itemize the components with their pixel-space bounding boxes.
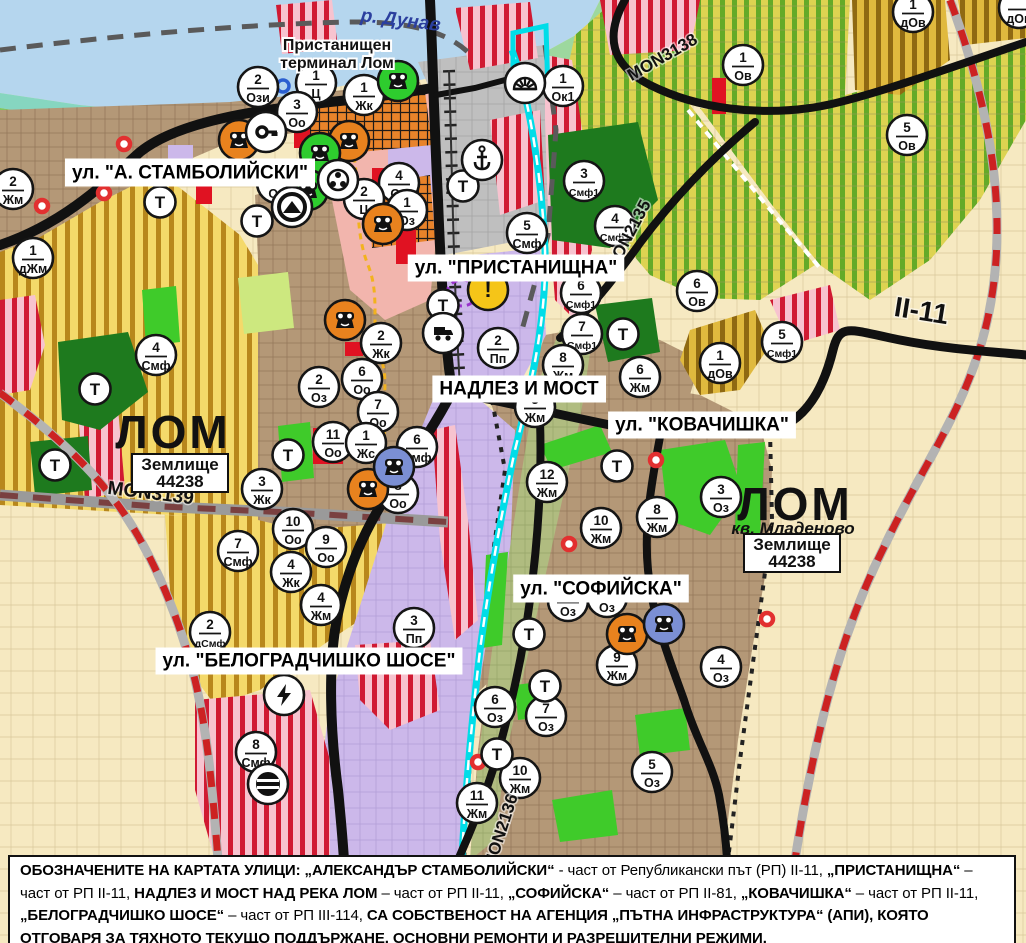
caption-segment: – част от РП II-81, xyxy=(609,885,741,902)
svg-text:Жм: Жм xyxy=(310,609,332,623)
svg-text:3: 3 xyxy=(258,474,266,489)
svg-text:терминал Лом: терминал Лом xyxy=(280,55,394,72)
svg-text:1: 1 xyxy=(716,348,724,363)
svg-text:6: 6 xyxy=(693,276,701,291)
svg-text:4: 4 xyxy=(317,590,325,605)
tunnel-icon xyxy=(272,187,312,227)
svg-text:Смф1: Смф1 xyxy=(569,187,599,199)
cadastre-box: Землище44238 xyxy=(132,454,228,492)
svg-text:Жк: Жк xyxy=(354,99,373,113)
zone-marker-Жм: 10Жм xyxy=(581,508,621,548)
svg-text:3: 3 xyxy=(717,482,725,497)
svg-text:Жм: Жм xyxy=(590,532,612,546)
svg-text:5: 5 xyxy=(778,327,786,342)
street-label: НАДЛЕЗ И МОСТ xyxy=(432,376,606,403)
zone-marker-Ов: 1Ов xyxy=(723,45,763,85)
street-label: ул. "СОФИЙСКА" xyxy=(513,575,689,603)
svg-text:6: 6 xyxy=(413,432,421,447)
street-label: ул. "КОВАЧИШКА" xyxy=(608,412,796,439)
svg-text:2: 2 xyxy=(254,72,262,87)
svg-text:1: 1 xyxy=(360,80,368,95)
svg-text:4: 4 xyxy=(611,211,619,226)
zone-marker-Смф1: 5Смф1 xyxy=(762,322,802,362)
port-terminal-label: Пристанищентерминал Лом xyxy=(280,37,394,72)
poi-red-dot xyxy=(761,613,773,625)
poi-red-dot xyxy=(98,187,110,199)
svg-text:5: 5 xyxy=(523,218,531,233)
svg-text:44238: 44238 xyxy=(768,552,815,571)
zone-marker-Пп: 3Пп xyxy=(394,608,434,648)
zone-marker-Жк: 4Жк xyxy=(271,552,311,592)
svg-text:Ов: Ов xyxy=(734,69,752,83)
lightning-icon xyxy=(264,675,304,715)
svg-text:2: 2 xyxy=(377,328,385,343)
svg-text:Жм: Жм xyxy=(629,381,651,395)
svg-text:дОв: дОв xyxy=(1006,12,1026,26)
svg-text:Жм: Жм xyxy=(509,782,531,796)
zone-marker-Жм: 11Жм xyxy=(457,783,497,823)
svg-text:6: 6 xyxy=(358,364,366,379)
caption-segment: - част от Републикански път (РП) II-11, xyxy=(555,862,827,879)
svg-text:1: 1 xyxy=(909,0,917,12)
t-marker: Т xyxy=(482,739,513,770)
svg-text:7: 7 xyxy=(542,701,550,716)
svg-text:Ози: Ози xyxy=(246,91,270,105)
svg-text:10: 10 xyxy=(512,763,527,778)
zone-marker-Оз: 6Оз xyxy=(475,687,515,727)
svg-text:6: 6 xyxy=(636,362,644,377)
zone-marker-Жм: 2Жм xyxy=(0,169,33,209)
zone-marker-Жм: 8Жм xyxy=(637,497,677,537)
svg-text:ул. "СОФИЙСКА": ул. "СОФИЙСКА" xyxy=(520,578,682,600)
svg-text:1: 1 xyxy=(559,71,567,86)
zone-marker-дОв: 1дОв xyxy=(893,0,933,32)
monument-orange-icon xyxy=(607,614,647,654)
svg-text:Оз: Оз xyxy=(644,776,660,790)
svg-text:2: 2 xyxy=(360,184,368,199)
zone-marker-Смф: 7Смф xyxy=(218,531,258,571)
svg-text:ул. "А. СТАМБОЛИЙСКИ": ул. "А. СТАМБОЛИЙСКИ" xyxy=(72,162,308,184)
zone-marker-Жм: 6Жм xyxy=(620,357,660,397)
svg-text:дОв: дОв xyxy=(707,367,733,381)
svg-text:8: 8 xyxy=(559,350,567,365)
zone-marker-Жм: 4Жм xyxy=(301,585,341,625)
svg-text:11: 11 xyxy=(470,788,485,803)
t-marker: Т xyxy=(608,319,639,350)
svg-text:10: 10 xyxy=(593,513,608,528)
svg-text:Оо: Оо xyxy=(284,533,302,547)
railcross-icon xyxy=(248,764,288,804)
svg-text:Оо: Оо xyxy=(389,497,407,511)
svg-text:Оо: Оо xyxy=(288,116,306,130)
caption-segment: НАДЛЕЗ И МОСТ НАД РЕКА ЛОМ xyxy=(134,885,377,902)
zone-marker-Оз: 2Оз xyxy=(299,367,339,407)
monument-blue-icon xyxy=(374,447,414,487)
map-screenshot: 2Ози1Ц3Оо1ЖкОо4Оо2Ц1Оз2Жм1дЖм4Смф1Ок13См… xyxy=(0,0,1026,943)
svg-text:Смф1: Смф1 xyxy=(767,348,797,360)
svg-text:Оо: Оо xyxy=(324,446,342,460)
zone-marker-дСмф: 2дСмф xyxy=(190,612,230,652)
street-label: ул. "А. СТАМБОЛИЙСКИ" xyxy=(65,159,315,187)
t-marker: Т xyxy=(530,671,561,702)
caption-segment: – част от РП III-114, xyxy=(224,907,367,924)
zone-marker-Смф1: 3Смф1 xyxy=(564,161,604,201)
svg-text:Т: Т xyxy=(90,380,101,399)
svg-text:Ок1: Ок1 xyxy=(552,90,575,104)
zone-marker-дОв: 1дОв xyxy=(700,343,740,383)
svg-text:Ов: Ов xyxy=(688,295,706,309)
svg-text:ул. "КОВАЧИШКА": ул. "КОВАЧИШКА" xyxy=(615,415,789,436)
svg-text:Жм: Жм xyxy=(606,669,628,683)
svg-text:Смф: Смф xyxy=(512,237,541,251)
svg-text:Оо: Оо xyxy=(317,551,335,565)
svg-text:Оз: Оз xyxy=(487,711,503,725)
svg-text:10: 10 xyxy=(285,514,300,529)
poi-red-dot xyxy=(36,200,48,212)
zone-marker-Жм: 12Жм xyxy=(527,462,567,502)
svg-text:Жк: Жк xyxy=(281,576,300,590)
caption-segment: – част от РП II-11, xyxy=(852,885,978,902)
svg-text:Оз: Оз xyxy=(599,601,615,615)
zoning-map: 2Ози1Ц3Оо1ЖкОо4Оо2Ц1Оз2Жм1дЖм4Смф1Ок13См… xyxy=(0,0,1026,943)
svg-text:2: 2 xyxy=(315,372,323,387)
zone-marker-Ози: 2Ози xyxy=(238,67,278,107)
svg-text:1: 1 xyxy=(739,50,747,65)
svg-text:Жк: Жк xyxy=(371,347,390,361)
svg-text:5: 5 xyxy=(903,120,911,135)
svg-text:Т: Т xyxy=(283,446,294,465)
svg-text:8: 8 xyxy=(252,737,260,752)
svg-text:НАДЛЕЗ И МОСТ: НАДЛЕЗ И МОСТ xyxy=(439,379,599,400)
svg-text:Т: Т xyxy=(252,212,263,231)
zone-marker-Оз: 4Оз xyxy=(701,647,741,687)
svg-text:Смф1: Смф1 xyxy=(566,299,596,311)
svg-text:2: 2 xyxy=(494,333,502,348)
svg-text:44238: 44238 xyxy=(156,472,203,491)
svg-text:5: 5 xyxy=(648,757,656,772)
svg-text:Т: Т xyxy=(618,325,629,344)
svg-text:ул. "БЕЛОГРАДЧИШКО ШОСЕ": ул. "БЕЛОГРАДЧИШКО ШОСЕ" xyxy=(163,651,456,672)
svg-text:Т: Т xyxy=(155,193,166,212)
svg-text:Оз: Оз xyxy=(713,501,729,515)
svg-text:3: 3 xyxy=(580,166,588,181)
svg-text:3: 3 xyxy=(293,97,301,112)
svg-text:Ов: Ов xyxy=(898,139,916,153)
zone-marker-Оо: 9Оо xyxy=(306,527,346,567)
svg-text:ул. "ПРИСТАНИЩНА": ул. "ПРИСТАНИЩНА" xyxy=(415,258,618,279)
palegreen-patch xyxy=(238,272,294,334)
svg-text:9: 9 xyxy=(322,532,330,547)
svg-text:8: 8 xyxy=(653,502,661,517)
svg-text:12: 12 xyxy=(539,467,554,482)
zone-marker-Оз: 5Оз xyxy=(632,752,672,792)
t-marker: Т xyxy=(514,619,545,650)
zone-marker-Жк: 2Жк xyxy=(361,323,401,363)
poi-red-dot xyxy=(650,454,662,466)
svg-text:дЖм: дЖм xyxy=(19,262,47,276)
svg-text:Т: Т xyxy=(524,625,535,644)
t-marker: Т xyxy=(145,187,176,218)
svg-text:Оз: Оз xyxy=(538,720,554,734)
svg-text:дОв: дОв xyxy=(900,16,926,30)
city-label: ЛОМ xyxy=(115,406,230,458)
svg-text:Жм: Жм xyxy=(524,411,546,425)
svg-text:Пп: Пп xyxy=(406,632,423,646)
poi-red-dot xyxy=(563,538,575,550)
key-icon xyxy=(246,112,286,152)
svg-text:Т: Т xyxy=(492,745,503,764)
svg-text:Пристанищен: Пристанищен xyxy=(283,37,391,54)
svg-text:7: 7 xyxy=(374,397,382,412)
poi-red-dot xyxy=(118,138,130,150)
caption-segment: – част от РП II-11, xyxy=(377,885,508,902)
caption-segment: „СОФИЙСКА“ xyxy=(508,885,609,902)
svg-text:Жк: Жк xyxy=(252,493,271,507)
svg-text:Жм: Жм xyxy=(466,807,488,821)
t-marker: Т xyxy=(40,450,71,481)
t-marker: Т xyxy=(242,206,273,237)
svg-text:Т: Т xyxy=(540,677,551,696)
svg-text:Пп: Пп xyxy=(490,352,507,366)
zone-marker-Ов: 6Ов xyxy=(677,271,717,311)
zone-marker-Оз: 3Оз xyxy=(701,477,741,517)
svg-text:2: 2 xyxy=(206,617,214,632)
street-label: ул. "БЕЛОГРАДЧИШКО ШОСЕ" xyxy=(156,648,463,675)
svg-text:3: 3 xyxy=(410,613,418,628)
svg-text:7: 7 xyxy=(578,319,586,334)
caption-segment: „ПРИСТАНИЩНА“ xyxy=(827,862,960,879)
zone-marker-Пп: 2Пп xyxy=(478,328,518,368)
svg-text:7: 7 xyxy=(234,536,242,551)
truck-icon xyxy=(423,313,463,353)
svg-text:6: 6 xyxy=(491,692,499,707)
svg-text:Оз: Оз xyxy=(713,671,729,685)
svg-text:11: 11 xyxy=(326,427,341,442)
svg-text:2: 2 xyxy=(9,174,17,189)
zone-marker-Ов: 5Ов xyxy=(887,115,927,155)
svg-text:4: 4 xyxy=(717,652,725,667)
svg-text:4: 4 xyxy=(395,168,403,183)
people-icon xyxy=(318,160,358,200)
svg-text:Жм: Жм xyxy=(2,193,24,207)
zone-marker-Смф: 5Смф xyxy=(507,213,547,253)
zone-marker-Ок1: 1Ок1 xyxy=(543,66,583,106)
svg-text:4: 4 xyxy=(152,340,160,355)
svg-text:1: 1 xyxy=(29,243,37,258)
svg-text:Т: Т xyxy=(458,177,469,196)
monument-orange-icon xyxy=(325,300,365,340)
caption-segment: „БЕЛОГРАДЧИШКО ШОСЕ“ xyxy=(20,907,224,924)
caption-segment: ОБОЗНАЧЕНИТЕ НА КАРТАТА УЛИЦИ: „АЛЕКСАНД… xyxy=(20,862,555,879)
svg-text:Жм: Жм xyxy=(646,521,668,535)
cadastre-box: Землище44238 xyxy=(744,534,840,572)
monument-orange-icon xyxy=(363,204,403,244)
svg-text:1: 1 xyxy=(362,428,370,443)
svg-text:Смф: Смф xyxy=(223,555,252,569)
zone-marker-Жк: 3Жк xyxy=(242,469,282,509)
svg-text:ЛОМ: ЛОМ xyxy=(115,406,230,458)
map-caption: ОБОЗНАЧЕНИТЕ НА КАРТАТА УЛИЦИ: „АЛЕКСАНД… xyxy=(8,855,1016,943)
svg-text:Оз: Оз xyxy=(311,391,327,405)
t-marker: Т xyxy=(273,440,304,471)
svg-text:4: 4 xyxy=(287,557,295,572)
street-label: ул. "ПРИСТАНИЩНА" xyxy=(408,255,625,282)
caption-segment: „КОВАЧИШКА“ xyxy=(741,885,852,902)
zone-marker-Смф: 4Смф xyxy=(136,335,176,375)
svg-text:Жм: Жм xyxy=(536,486,558,500)
svg-text:Т: Т xyxy=(612,457,623,476)
svg-text:1: 1 xyxy=(403,195,411,210)
harbor-icon xyxy=(505,63,545,103)
svg-text:Жс: Жс xyxy=(356,447,375,461)
svg-text:Оз: Оз xyxy=(560,605,576,619)
t-marker: Т xyxy=(80,374,111,405)
svg-text:Т: Т xyxy=(50,456,61,475)
t-marker: Т xyxy=(602,451,633,482)
svg-text:Смф: Смф xyxy=(141,359,170,373)
monument-blue-icon xyxy=(644,604,684,644)
anchor-icon xyxy=(462,140,502,180)
zone-marker-дЖм: 1дЖм xyxy=(13,238,53,278)
